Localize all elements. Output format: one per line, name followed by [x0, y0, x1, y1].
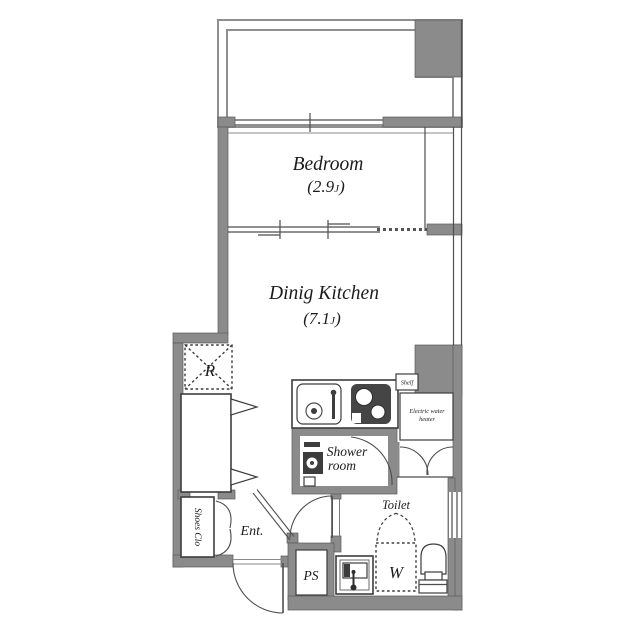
dining-kitchen-label: Dinig Kitchen [268, 283, 379, 304]
washbasin-handle [344, 564, 350, 577]
bottom-wall-right [288, 596, 462, 610]
dining-kitchen-size: (7.1J) [303, 309, 341, 328]
toilet-tank [419, 580, 447, 593]
water-heater-label-2: heater [419, 416, 435, 423]
left-wall-step [173, 333, 228, 343]
shower-control-dot [310, 461, 314, 465]
ps-label: PS [303, 568, 319, 583]
refrigerator-label: R [204, 361, 216, 380]
floor-plan-page: Bedroom (2.9J) Dinig Kitchen (7.1J) R [0, 0, 640, 639]
bedroom-size-suffix: ) [338, 177, 345, 196]
bedroom-size-prefix: (2.9 [307, 177, 334, 196]
kitchen-counter [292, 380, 398, 428]
window-wall-stub-right [383, 117, 462, 127]
stove-burner-1 [356, 389, 373, 406]
shelf-label: Shelf [401, 380, 415, 387]
toilet-bowl [421, 544, 446, 574]
toilet-label: Toilet [382, 498, 411, 512]
stove-icon [351, 384, 391, 424]
shower-room-label-2: room [328, 458, 356, 473]
shoes-closet-label: Shoes Clo [192, 508, 202, 547]
shower-head-icon [304, 442, 320, 447]
washbasin-icon [336, 556, 373, 594]
left-wall-upper [218, 127, 228, 335]
shower-room-label-1: Shower [327, 444, 368, 459]
pipe-space: PS [296, 550, 327, 595]
partition-wall-right [427, 224, 462, 235]
floor-plan: Bedroom (2.9J) Dinig Kitchen (7.1J) R [0, 0, 640, 639]
toilet-icon [419, 544, 447, 593]
dk-size-prefix: (7.1 [303, 309, 330, 328]
stove-burner-2 [371, 405, 385, 419]
sink-icon [297, 384, 341, 424]
dk-size-suffix: ) [334, 309, 341, 328]
washing-machine-label: W [389, 563, 405, 582]
entrance-label: Ent. [240, 524, 264, 539]
sink-faucet [332, 395, 335, 419]
washbasin-faucet-knob [351, 585, 357, 591]
toilet-seat-hinge [425, 572, 442, 580]
bedroom-label: Bedroom [293, 154, 364, 175]
water-heater-label-1: Electric water [408, 408, 445, 415]
closet-box [181, 394, 231, 492]
balcony-corner-pillar [415, 20, 462, 77]
stove-notch [352, 413, 361, 423]
toilet-window-gap [449, 492, 461, 538]
window-wall-stub-left [218, 117, 235, 127]
shower-drain [304, 477, 315, 486]
shower-room: Shower room [300, 436, 392, 486]
washbasin-faucet-dot [352, 570, 356, 574]
toilet-window [449, 492, 461, 538]
bedroom-size: (2.9J) [307, 177, 345, 196]
sink-faucet-head [331, 390, 337, 396]
sink-drain-dot [311, 408, 317, 414]
